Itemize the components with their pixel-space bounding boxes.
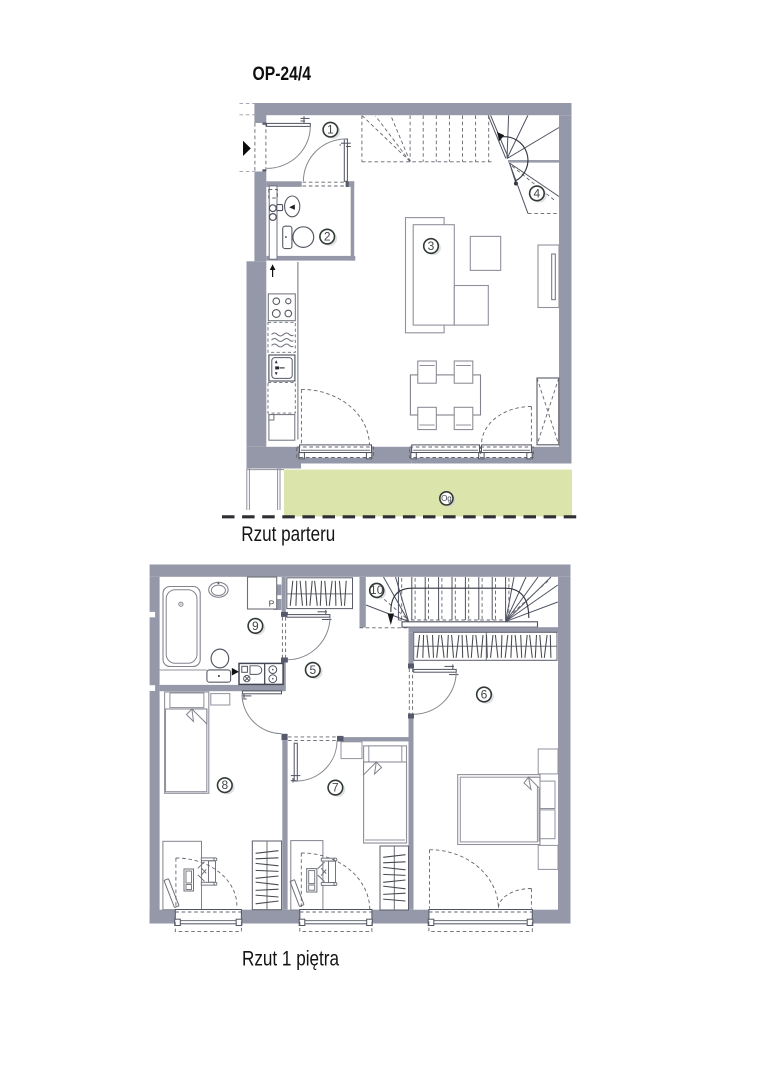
svg-text:6: 6	[481, 688, 488, 702]
svg-text:10: 10	[370, 583, 384, 597]
svg-text:4: 4	[534, 186, 541, 200]
svg-text:5: 5	[309, 663, 316, 677]
svg-text:9: 9	[252, 619, 259, 633]
svg-text:Rzut parteru: Rzut parteru	[241, 523, 335, 546]
svg-text:8: 8	[221, 778, 228, 792]
svg-text:7: 7	[332, 781, 339, 795]
svg-text:Og: Og	[441, 494, 452, 503]
svg-text:3: 3	[428, 239, 435, 253]
svg-text:P: P	[269, 599, 275, 609]
svg-text:2: 2	[324, 230, 331, 244]
svg-text:OP-24/4: OP-24/4	[253, 64, 312, 85]
svg-text:Rzut 1 piętra: Rzut 1 piętra	[242, 948, 339, 971]
svg-text:1: 1	[327, 123, 334, 137]
